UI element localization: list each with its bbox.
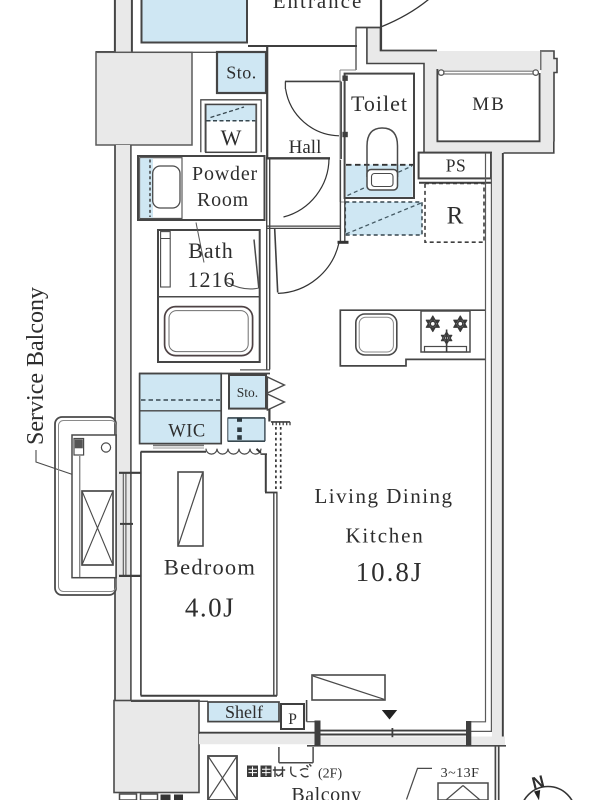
svg-text:Entrance: Entrance [273, 0, 364, 13]
svg-text:Shelf: Shelf [225, 702, 263, 722]
svg-text:Room: Room [197, 189, 249, 211]
svg-text:R: R [447, 203, 464, 230]
svg-text:Service Balcony: Service Balcony [23, 287, 49, 445]
svg-text:W: W [221, 125, 242, 150]
svg-text:Sto.: Sto. [237, 385, 258, 400]
svg-text:WIC: WIC [168, 422, 205, 442]
svg-text:Living Dining: Living Dining [314, 484, 453, 508]
svg-text:Bath: Bath [188, 238, 234, 263]
svg-text:MB: MB [472, 94, 506, 115]
svg-text:3~13F: 3~13F [441, 766, 480, 781]
svg-text:P: P [288, 711, 297, 728]
svg-text:1216: 1216 [188, 267, 236, 292]
svg-text:Kitchen: Kitchen [345, 524, 424, 548]
svg-text:Powder: Powder [192, 163, 258, 185]
svg-text:10.8J: 10.8J [356, 557, 424, 587]
svg-text:Sto.: Sto. [226, 63, 257, 83]
svg-text:N: N [530, 772, 547, 793]
svg-text:Bedroom: Bedroom [164, 555, 256, 580]
svg-text:PS: PS [446, 156, 466, 176]
svg-text:(2F): (2F) [318, 767, 342, 782]
svg-text:4.0J: 4.0J [185, 593, 235, 623]
svg-text:Balcony: Balcony [291, 784, 361, 800]
svg-text:Hall: Hall [289, 137, 322, 158]
svg-text:Toilet: Toilet [351, 91, 408, 116]
